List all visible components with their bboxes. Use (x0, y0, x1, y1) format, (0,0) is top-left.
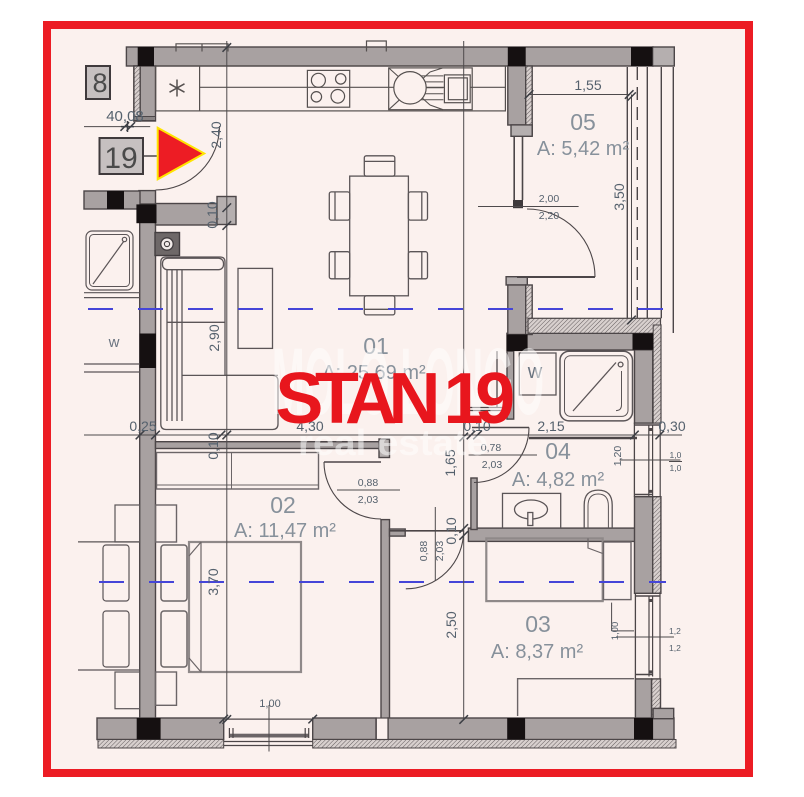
svg-text:0,10: 0,10 (443, 517, 459, 544)
svg-text:2,03: 2,03 (358, 494, 379, 506)
svg-text:1,0: 1,0 (670, 450, 682, 460)
svg-text:2,40: 2,40 (208, 121, 224, 148)
svg-text:3,50: 3,50 (611, 183, 627, 210)
svg-text:2,20: 2,20 (539, 210, 560, 222)
svg-text:1,2: 1,2 (669, 626, 681, 636)
svg-text:0,88: 0,88 (358, 477, 379, 489)
svg-text:0,30: 0,30 (658, 418, 685, 434)
svg-text:2,50: 2,50 (443, 611, 459, 638)
svg-text:1,00: 1,00 (259, 698, 280, 710)
svg-text:0,88: 0,88 (418, 541, 430, 562)
svg-text:1,0: 1,0 (670, 463, 682, 473)
svg-text:0,10: 0,10 (204, 201, 220, 228)
svg-text:1,00: 1,00 (610, 622, 621, 641)
svg-text:2,90: 2,90 (206, 324, 222, 351)
svg-text:A: 8,37 m²: A: 8,37 m² (491, 641, 584, 663)
svg-text:STAN 19: STAN 19 (275, 359, 513, 439)
svg-text:0,25: 0,25 (129, 418, 156, 434)
svg-text:8: 8 (92, 68, 107, 98)
svg-text:2,03: 2,03 (434, 541, 446, 562)
svg-text:w: w (108, 334, 120, 351)
svg-text:1,20: 1,20 (612, 446, 624, 467)
svg-text:3,70: 3,70 (205, 568, 221, 595)
svg-text:40,08: 40,08 (106, 108, 144, 125)
svg-text:A: 4,82 m²: A: 4,82 m² (512, 469, 605, 491)
svg-text:1,2: 1,2 (669, 643, 681, 653)
svg-text:A: 5,42 m²: A: 5,42 m² (537, 138, 630, 160)
svg-text:04: 04 (545, 438, 571, 464)
svg-text:0,10: 0,10 (205, 432, 221, 459)
svg-text:A: 11,47 m²: A: 11,47 m² (234, 520, 336, 542)
svg-text:03: 03 (525, 611, 551, 637)
svg-text:02: 02 (270, 492, 296, 518)
svg-text:2,00: 2,00 (539, 193, 560, 205)
svg-text:19: 19 (104, 142, 137, 175)
svg-text:05: 05 (570, 109, 596, 135)
svg-text:1,55: 1,55 (574, 77, 601, 93)
